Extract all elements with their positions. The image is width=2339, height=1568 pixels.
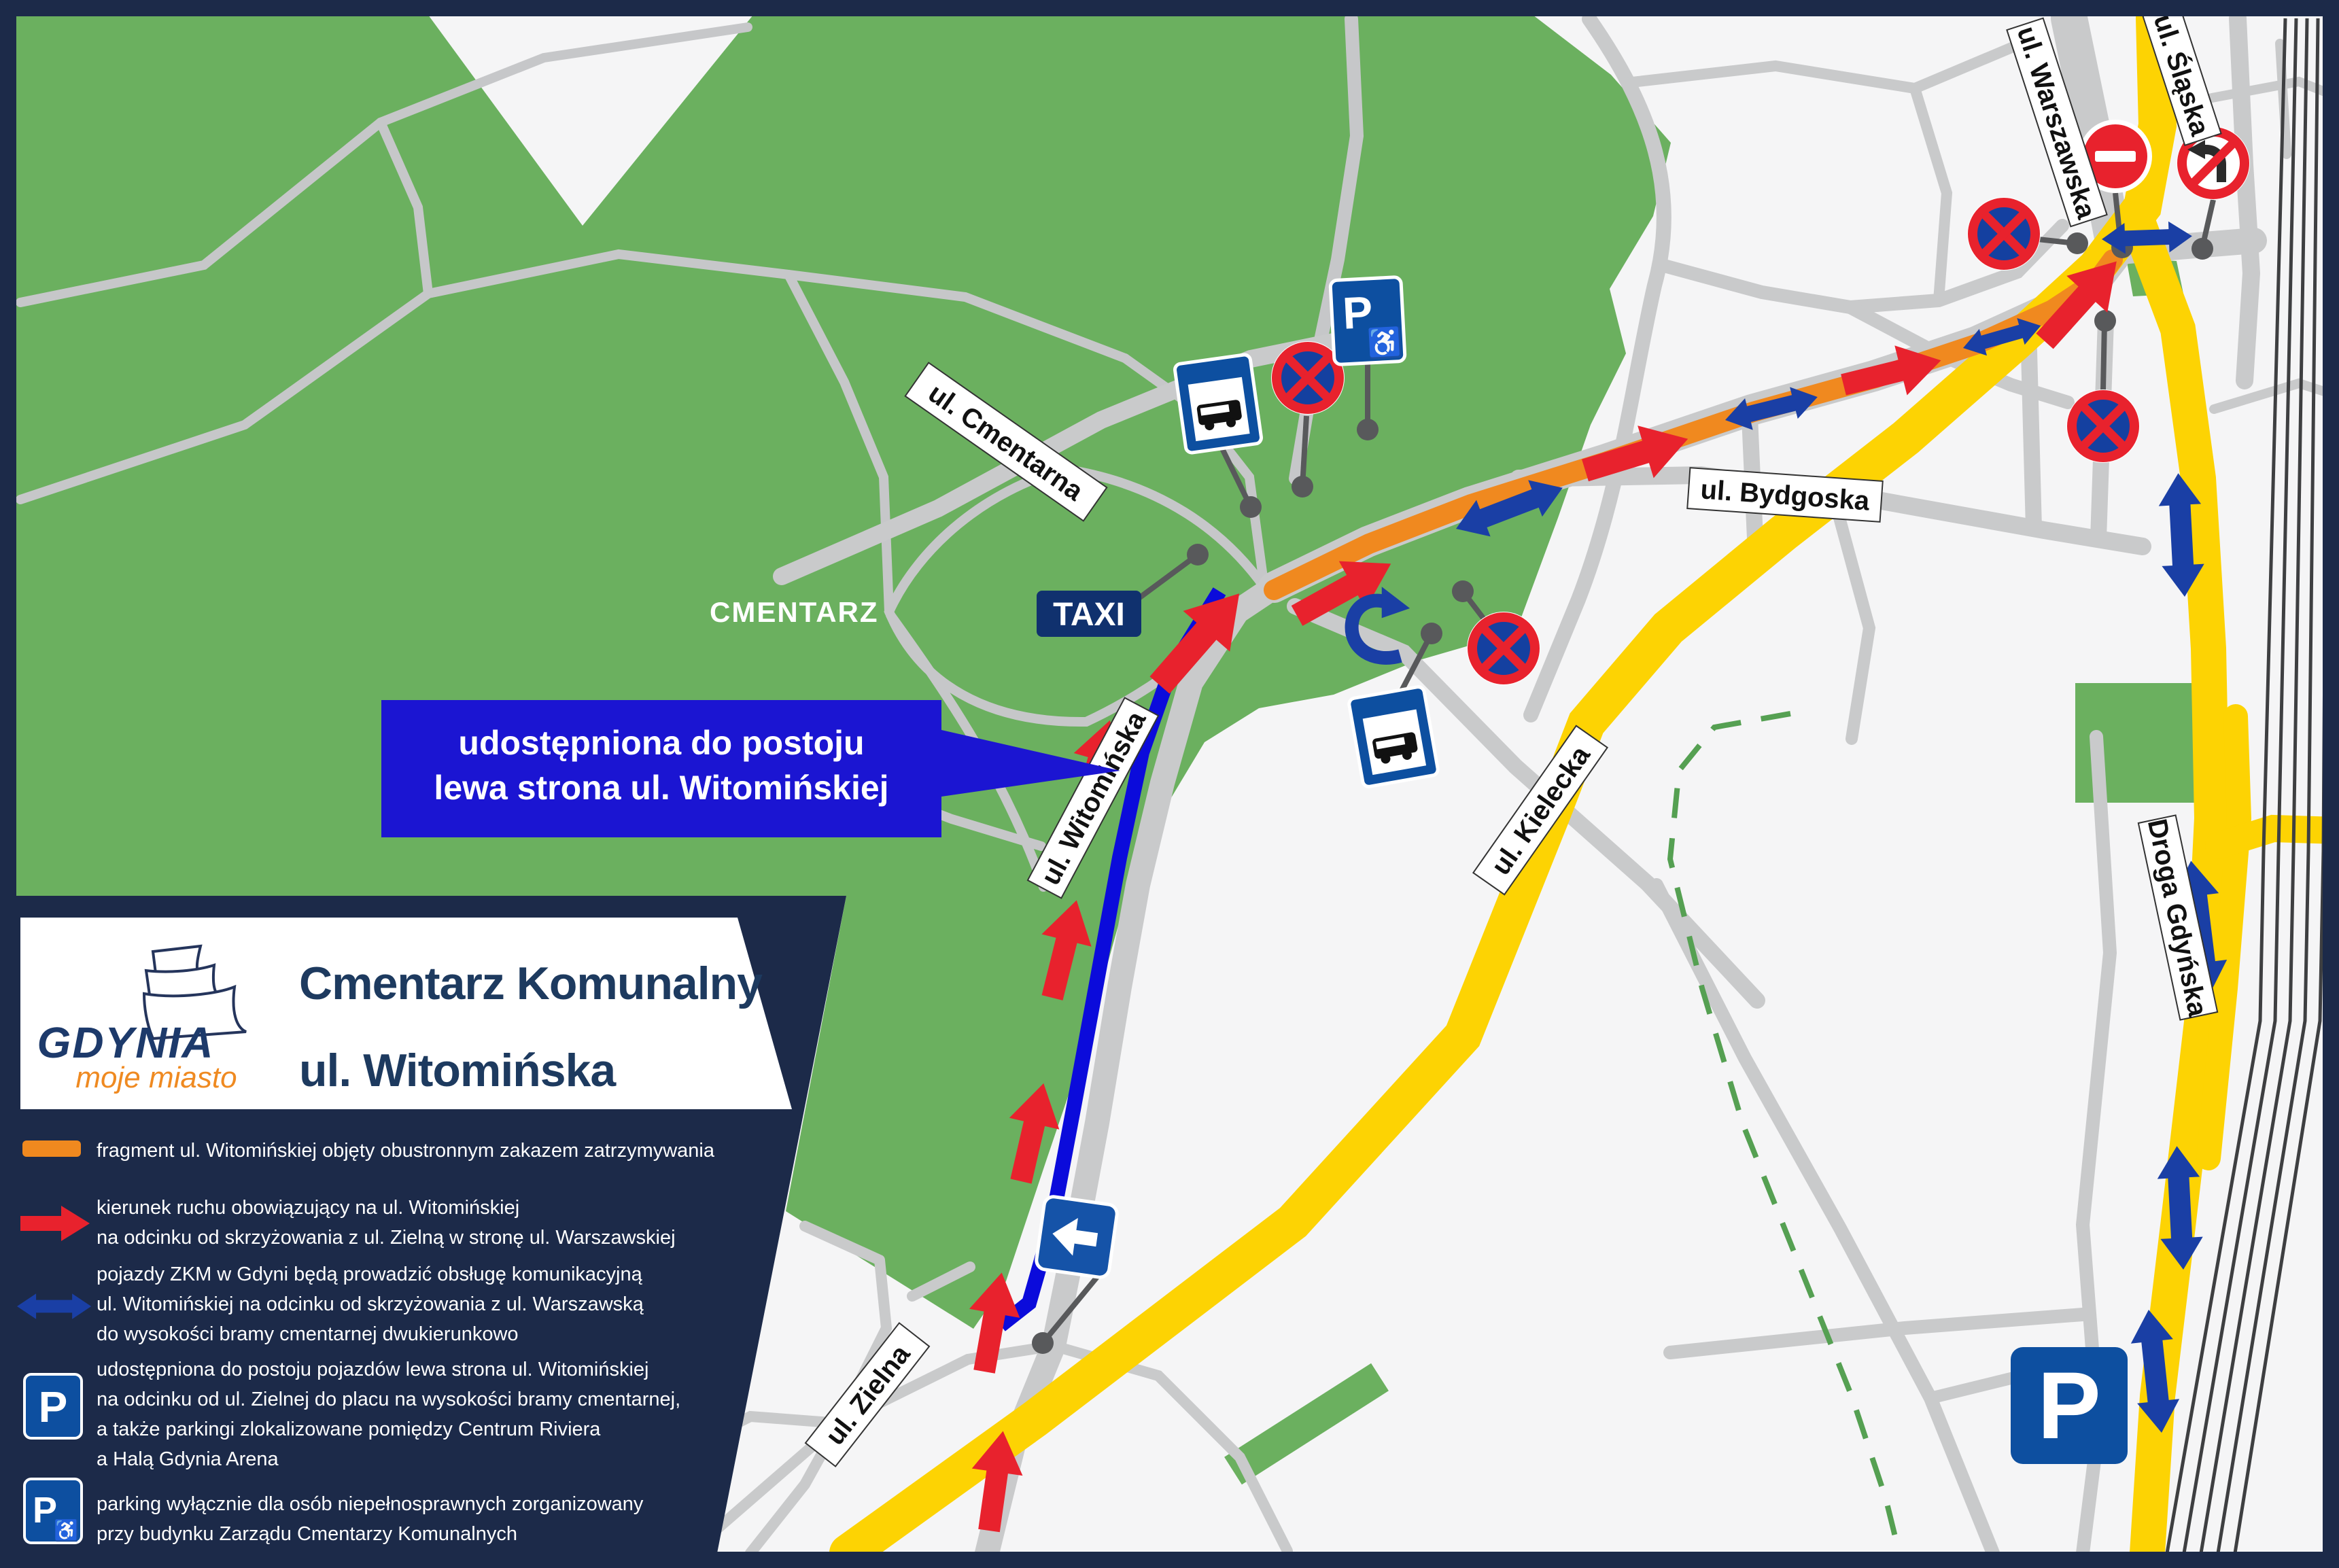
svg-text:fragment ul. Witomińskiej obję: fragment ul. Witomińskiej objęty obustro…: [97, 1140, 715, 1162]
svg-text:pojazdy ZKM w Gdyni będą prowa: pojazdy ZKM w Gdyni będą prowadzić obsłu…: [97, 1264, 643, 1285]
svg-text:do wysokości bramy cmentarnej: do wysokości bramy cmentarnej dwukierunk…: [97, 1323, 519, 1345]
legend-disabled-parking-sign-icon: P ♿: [24, 1479, 82, 1543]
svg-text:udostępniona do postoju pojazd: udostępniona do postoju pojazdów lewa st…: [97, 1359, 648, 1380]
svg-text:ul. Witomińskiej na odcinku od: ul. Witomińskiej na odcinku od skrzyżowa…: [97, 1293, 644, 1315]
no-stopping-sign-icon: [1967, 197, 2041, 271]
svg-text:kierunek ruchu obowiązujący na: kierunek ruchu obowiązujący na ul. Witom…: [97, 1197, 519, 1219]
taxi-sign: TAXI: [1037, 591, 1141, 637]
svg-text:na odcinku od skrzyżowania z u: na odcinku od skrzyżowania z ul. Zielną …: [97, 1227, 676, 1249]
logo-name: GDYNIA: [37, 1018, 215, 1067]
map-canvas: P ♿ P TAXI ul. Cmentarna ul. Witomińska …: [0, 0, 2339, 1568]
svg-text:na odcinku od ul. Zielnej do p: na odcinku od ul. Zielnej do placu na wy…: [97, 1389, 680, 1410]
svg-text:przy budynku Zarządu Cmentarzy: przy budynku Zarządu Cmentarzy Komunalny…: [97, 1523, 517, 1545]
map-infographic: P ♿ P TAXI ul. Cmentarna ul. Witomińska …: [0, 0, 2339, 1568]
taxi-label: TAXI: [1053, 597, 1125, 633]
no-stopping-sign-icon: [2066, 389, 2140, 463]
legend-orange-segment-icon: [22, 1140, 81, 1157]
page-title-line2: ul. Witomińska: [299, 1045, 617, 1096]
disabled-parking-sign-icon: P ♿: [1330, 277, 1405, 364]
wheelchair-icon: ♿: [54, 1518, 79, 1542]
svg-text:P: P: [39, 1382, 68, 1431]
legend-parking-sign-icon: P: [24, 1374, 82, 1438]
svg-text:lewa strona ul. Witomińskiej: lewa strona ul. Witomińskiej: [434, 769, 888, 807]
page-title-line1: Cmentarz Komunalny: [299, 958, 763, 1009]
bus-stop-sign-icon: [1174, 354, 1262, 453]
svg-text:udostępniona do postoju: udostępniona do postoju: [458, 724, 864, 762]
legend-panel: GDYNIA moje miasto Cmentarz Komunalny ul…: [15, 896, 846, 1553]
svg-text:parking wyłącznie dla osób nie: parking wyłącznie dla osób niepełnospraw…: [97, 1493, 644, 1515]
wheelchair-icon: ♿: [1366, 325, 1404, 360]
bus-stop-sign-icon: [1348, 686, 1438, 787]
logo-tagline: moje miasto: [75, 1061, 237, 1094]
no-stopping-sign-icon: [1467, 612, 1540, 685]
svg-text:a także parkingi zlokalizowane: a także parkingi zlokalizowane pomiędzy …: [97, 1418, 601, 1440]
parking-letter: P: [2037, 1352, 2100, 1459]
svg-text:a Halą Gdynia Arena: a Halą Gdynia Arena: [97, 1448, 279, 1470]
parking-sign-icon: P: [2011, 1347, 2128, 1464]
one-way-sign-icon: [1035, 1196, 1118, 1278]
cemetery-area-label: CMENTARZ: [710, 596, 879, 628]
